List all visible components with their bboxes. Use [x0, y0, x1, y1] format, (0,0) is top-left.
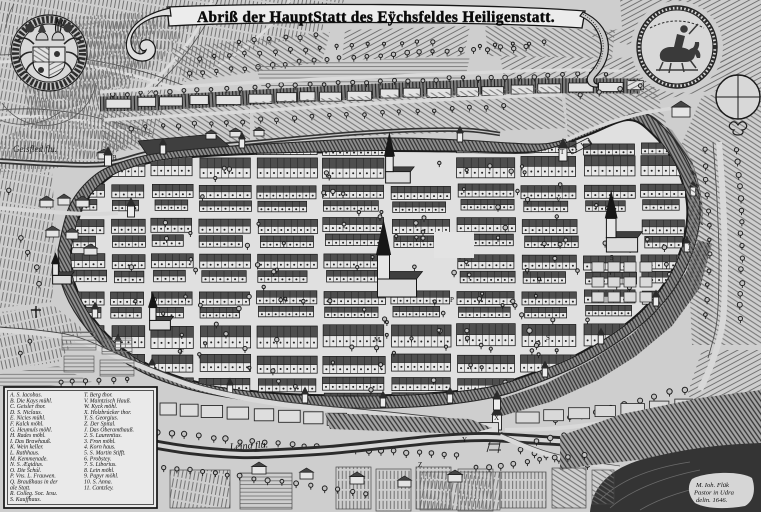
- svg-text:delin. 1646.: delin. 1646.: [696, 497, 728, 504]
- svg-text:D: D: [152, 296, 157, 304]
- svg-text:Geisfled flu.: Geisfled flu.: [13, 144, 57, 154]
- svg-text:X: X: [494, 414, 499, 422]
- svg-text:F: F: [180, 348, 184, 356]
- svg-text:Pastor in Udra: Pastor in Udra: [693, 490, 735, 497]
- svg-text:5: 5: [610, 254, 614, 262]
- svg-text:Abriß der HauptStatt des Eÿchs: Abriß der HauptStatt des Eÿchsfeldes Hei…: [197, 9, 555, 26]
- svg-text:C: C: [134, 204, 139, 212]
- svg-text:V: V: [556, 196, 561, 204]
- svg-text:Z: Z: [418, 461, 422, 469]
- svg-text:11. Cantzley.: 11. Cantzley.: [84, 485, 114, 491]
- svg-text:S: S: [546, 334, 550, 342]
- svg-text:P: P: [450, 296, 454, 304]
- svg-text:S. Kauffhaus.: S. Kauffhaus.: [10, 496, 41, 503]
- svg-text:M. Ioh. Flük: M. Ioh. Flük: [695, 482, 730, 489]
- svg-text:7: 7: [610, 196, 614, 204]
- svg-text:T: T: [560, 148, 565, 156]
- svg-text:M: M: [374, 336, 381, 344]
- svg-text:Y: Y: [462, 436, 467, 444]
- svg-text:B: B: [112, 154, 117, 162]
